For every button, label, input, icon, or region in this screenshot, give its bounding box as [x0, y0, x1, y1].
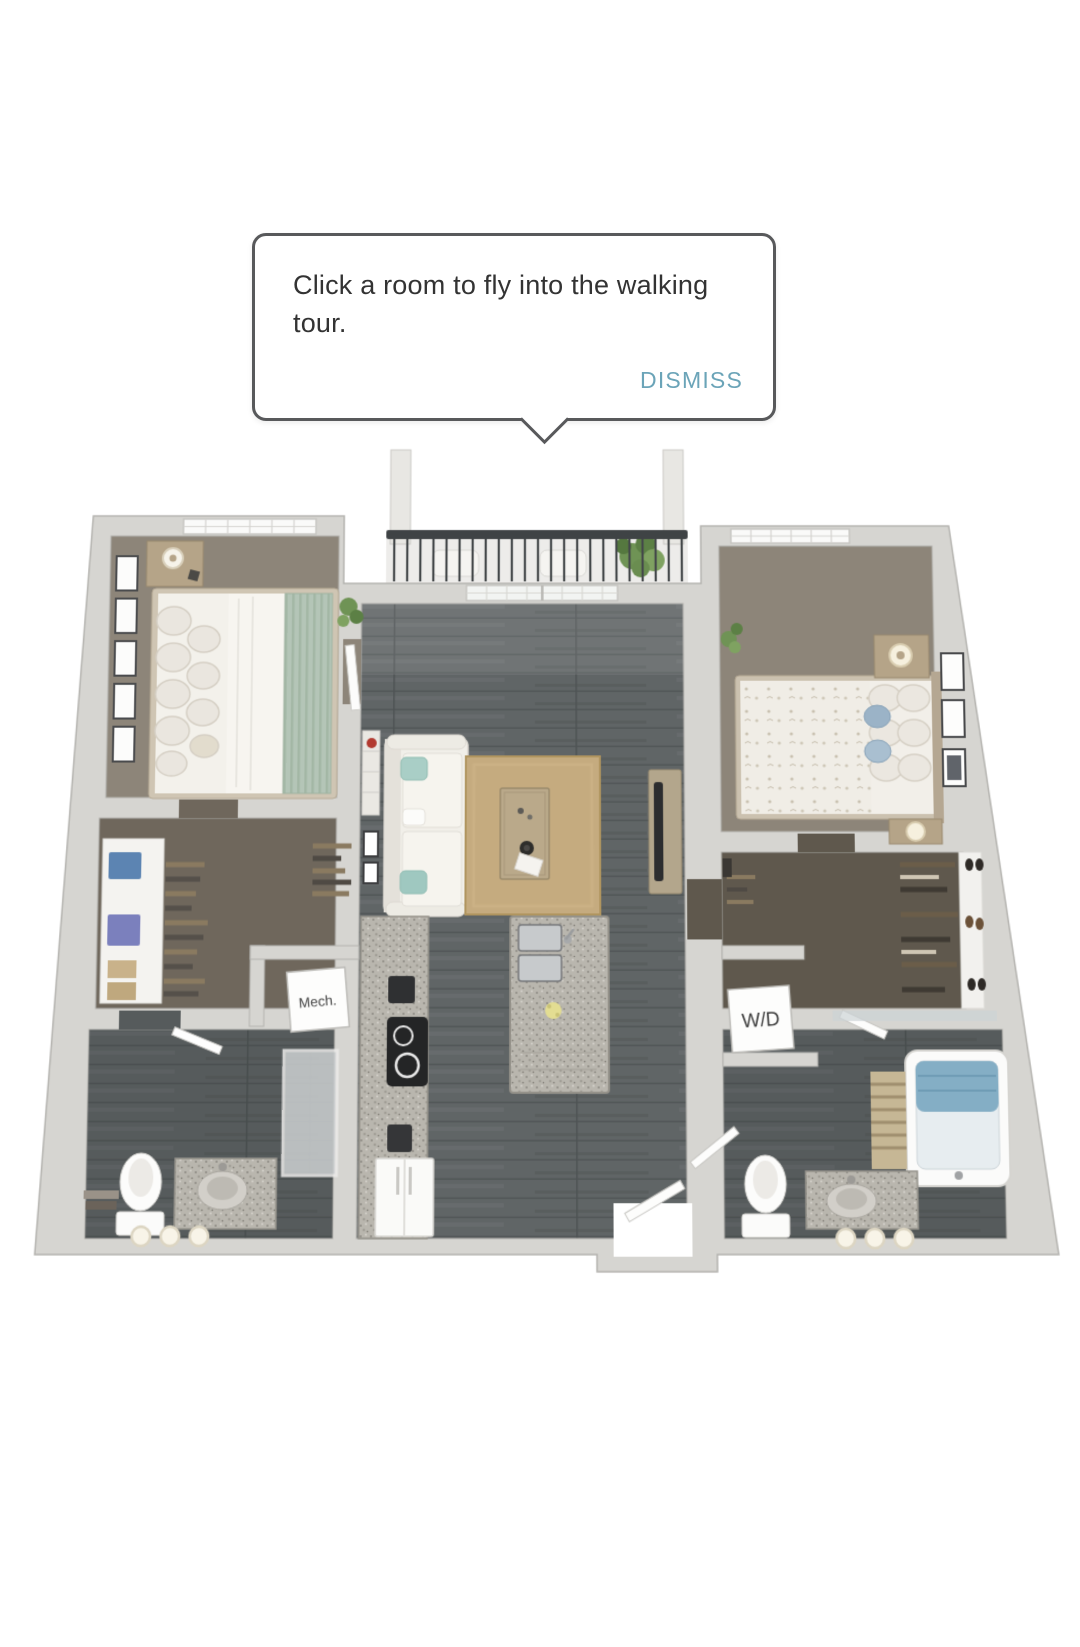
tour-tooltip: Click a room to fly into the walking tou… — [252, 233, 776, 421]
room-balcony[interactable] — [386, 450, 688, 583]
glass-wall — [833, 1011, 997, 1021]
picture-frame — [363, 863, 377, 884]
doorway-living-wing-right — [687, 879, 722, 939]
picture-frame — [116, 556, 138, 590]
sink — [519, 925, 562, 951]
balcony-post-right — [663, 450, 684, 544]
laundry-wall — [723, 1053, 818, 1067]
picture-frame — [115, 599, 137, 633]
tv — [654, 782, 664, 881]
vanity-lights — [131, 1227, 208, 1246]
mech-label: Mech. — [298, 992, 337, 1011]
shelf-items — [85, 1201, 116, 1210]
bathtub — [905, 1051, 1011, 1187]
blue-pillow — [864, 705, 891, 727]
picture-frame — [942, 700, 965, 737]
toilet — [741, 1155, 789, 1237]
picture-frame — [941, 653, 964, 690]
storage-bin-purple — [107, 914, 140, 945]
towel — [915, 1061, 998, 1112]
storage-box — [107, 982, 136, 1000]
doorway-bedroom-right-closet — [798, 834, 855, 853]
tooltip-message: Click a room to fly into the walking tou… — [255, 236, 769, 343]
flowers — [545, 1002, 561, 1019]
window-bedroom-right — [731, 529, 850, 543]
tooltip-tail — [520, 395, 569, 444]
bed-right — [735, 672, 944, 824]
cooktop — [387, 1017, 429, 1087]
vanity — [174, 1158, 276, 1228]
picture-frame — [114, 641, 136, 676]
balcony-railing — [386, 530, 687, 539]
teal-pillow — [400, 871, 427, 894]
coffee-table — [500, 788, 549, 879]
picture-frame — [114, 684, 136, 719]
living-light — [361, 604, 683, 675]
virtual-tour-view: Click a room to fly into the walking tou… — [0, 0, 1080, 1647]
picture-frame — [364, 832, 378, 857]
pillows — [869, 685, 931, 781]
tv-console — [649, 770, 682, 894]
tub-surround — [870, 1072, 907, 1169]
refrigerator — [375, 1158, 433, 1236]
laundry-wall — [722, 946, 804, 960]
mixer — [387, 1124, 412, 1152]
washer-dryer-label: W/D — [741, 1008, 781, 1033]
dismiss-button[interactable]: DISMISS — [640, 367, 743, 394]
teal-pillow — [401, 757, 428, 780]
picture-frame — [113, 727, 135, 762]
french-doors-balcony[interactable] — [466, 585, 617, 600]
coffee-maker — [388, 976, 415, 1003]
doorway-closet-left-bath — [119, 1011, 181, 1030]
lamp — [906, 822, 925, 841]
storage-bin-blue — [108, 852, 141, 879]
sofa — [384, 735, 468, 917]
window-bedroom-left — [183, 519, 316, 534]
shelf-item — [722, 858, 731, 877]
storage-box — [108, 960, 137, 978]
shelf-items — [84, 1190, 119, 1199]
doorway-bedroom-left-closet — [179, 800, 238, 819]
vanity — [806, 1171, 919, 1229]
red-vase — [367, 738, 377, 748]
bed-left — [149, 588, 339, 798]
entry-opening — [614, 1203, 693, 1257]
floor-plan-view[interactable]: Mech. — [16, 438, 1065, 1276]
sink — [518, 955, 561, 981]
white-pillow — [403, 809, 425, 826]
balcony-post-left — [390, 450, 411, 544]
kitchen-island — [510, 917, 609, 1093]
vanity-lights — [836, 1229, 913, 1248]
blue-pillow — [864, 740, 891, 763]
mech-wall — [250, 946, 359, 960]
